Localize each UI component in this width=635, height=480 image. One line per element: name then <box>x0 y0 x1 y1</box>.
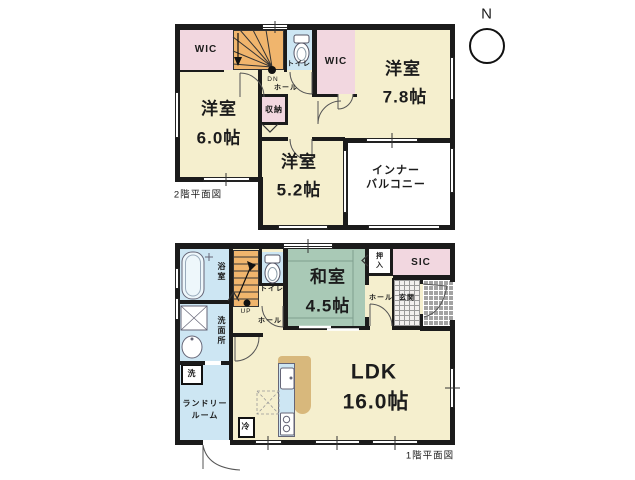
window <box>315 440 360 445</box>
balcony-label-line1: インナー <box>372 166 420 177</box>
genkan-label: 玄関 <box>399 295 415 302</box>
window <box>450 368 455 408</box>
wall <box>343 213 348 230</box>
door-opening <box>203 440 230 445</box>
window <box>203 177 250 182</box>
wall <box>312 28 317 97</box>
stairs-up-label: UP <box>240 309 251 316</box>
hall-label-1f-right: ホール <box>369 295 393 302</box>
window <box>283 243 333 249</box>
wall <box>353 94 357 97</box>
wall <box>262 137 288 141</box>
wall <box>418 138 455 143</box>
kitchen-counter-edge <box>294 356 311 414</box>
wall <box>180 70 224 72</box>
hall-label-2f: ホール <box>274 85 298 92</box>
compass-circle <box>469 28 505 64</box>
toilet-room-1f <box>262 252 283 285</box>
wall <box>420 326 455 331</box>
wall <box>229 361 233 445</box>
floor2-caption: 2階平面図 <box>174 190 222 200</box>
stairs-1f <box>233 250 259 307</box>
laundry-label-line2: ルーム <box>192 412 219 420</box>
window <box>368 225 440 230</box>
window <box>366 138 418 143</box>
oshiire-label: 押入 <box>376 252 383 270</box>
wall <box>233 333 263 337</box>
compass-north-label: N <box>481 7 493 22</box>
kitchen-counter <box>278 363 295 437</box>
window <box>450 57 455 100</box>
wall <box>392 278 394 326</box>
wall <box>343 140 348 150</box>
door-opening <box>205 361 221 365</box>
room-label-60-name: 洋室 <box>201 101 237 118</box>
fridge-label: 冷 <box>242 423 251 431</box>
window <box>175 268 180 289</box>
room-label-78-name: 洋室 <box>385 61 421 78</box>
wall <box>285 94 288 125</box>
wall <box>365 317 369 330</box>
wall <box>175 300 233 304</box>
wall <box>390 249 393 276</box>
room-label-wic2-2f: WIC <box>325 57 347 67</box>
window <box>343 150 348 213</box>
entrance-porch <box>423 280 453 326</box>
washer-label: 洗 <box>188 370 197 378</box>
stairs-dn-label: DN <box>267 77 278 84</box>
wall <box>450 24 455 230</box>
storage-label-2f: 収納 <box>265 106 283 114</box>
washroom-label: 洗面所 <box>217 316 225 346</box>
wall <box>420 314 423 326</box>
wall <box>393 275 455 280</box>
window <box>278 225 328 230</box>
room-label-60-size: 6.0帖 <box>197 130 242 147</box>
wall <box>283 326 370 330</box>
wall <box>175 361 233 365</box>
sic-label: SIC <box>411 258 431 268</box>
wall <box>229 249 233 304</box>
room-label-78-size: 7.8帖 <box>383 89 428 106</box>
window <box>372 440 418 445</box>
floor1-caption: 1階平面図 <box>406 451 454 461</box>
wall <box>420 278 423 284</box>
wall <box>258 177 263 230</box>
window <box>175 92 180 138</box>
laundry-label-line1: ランドリー <box>183 400 228 408</box>
ldk-label-name: LDK <box>351 362 397 383</box>
window <box>262 24 288 30</box>
room-label-toilet-2f: トイレ <box>287 61 311 68</box>
wall <box>317 94 338 97</box>
window <box>255 440 282 445</box>
floorplan-image: N WIC トイレ WIC DN ホール 洋室 7.8帖 洋室 6.0帖 収納 … <box>0 0 635 480</box>
room-label-52-name: 洋室 <box>281 154 317 171</box>
wall <box>365 249 369 285</box>
wall <box>312 137 345 141</box>
room-label-wic1-2f: WIC <box>195 45 217 55</box>
genkan-tile <box>394 278 420 326</box>
ldk-label-size: 16.0帖 <box>343 392 410 413</box>
hall-label-1f-left: ホール <box>258 318 282 325</box>
window <box>175 298 180 320</box>
wall <box>259 249 262 285</box>
balcony-label-line2: バルコニー <box>366 180 426 191</box>
window <box>450 148 455 193</box>
toilet-label-1f: トイレ <box>260 286 284 293</box>
washitsu-label-name: 和室 <box>310 269 346 286</box>
washitsu-label-size: 4.5帖 <box>306 298 351 315</box>
stairs-2f <box>233 30 284 70</box>
wall <box>345 138 368 143</box>
bath-label: 浴室 <box>217 262 225 282</box>
room-label-52-size: 5.2帖 <box>277 182 322 199</box>
